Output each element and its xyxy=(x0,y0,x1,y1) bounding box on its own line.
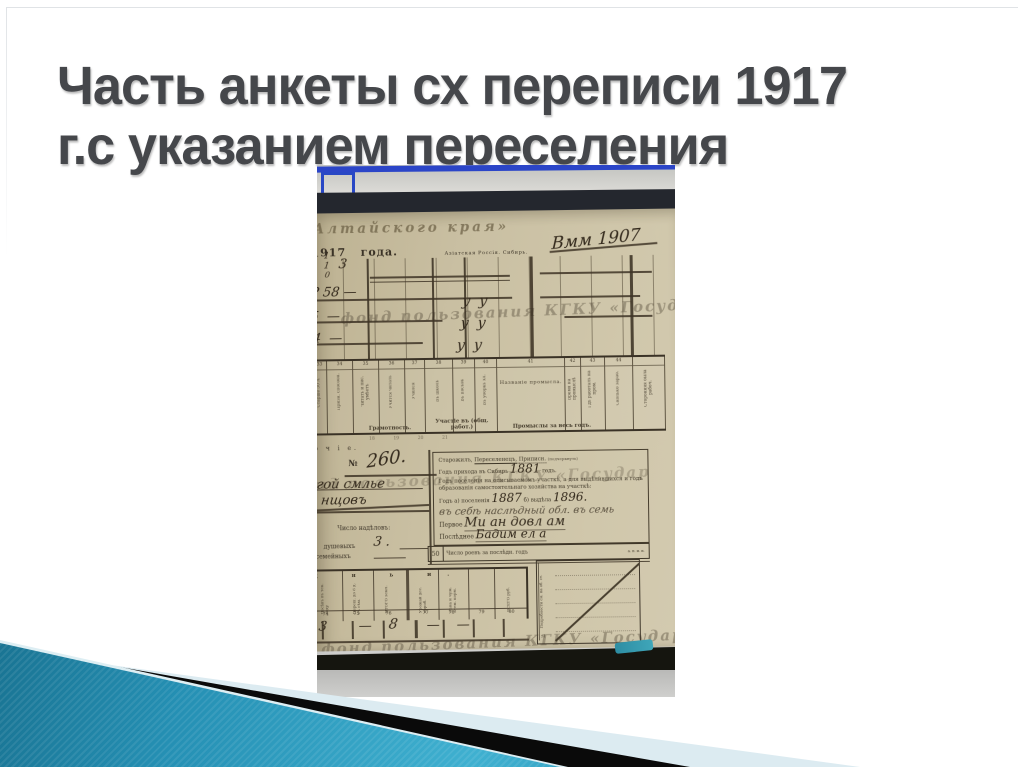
col-number xyxy=(633,357,664,366)
col-label: Старше 50 л. xyxy=(317,373,322,411)
col-label: Призн. способн. xyxy=(337,373,342,411)
grid-line xyxy=(383,621,385,639)
allotments-row1-value: 3 . xyxy=(373,534,391,549)
bottom-value: — xyxy=(426,618,441,633)
bottom-col-number: 78 xyxy=(449,611,455,616)
handwritten-digit: 3 xyxy=(338,257,348,272)
monitor-gray-band-bottom xyxy=(317,670,675,697)
col-number: 41 xyxy=(497,358,564,368)
row-50-text: Число роевъ за послѣдн. годъ xyxy=(443,550,528,557)
grid-line xyxy=(322,621,324,639)
form-region-header: Алтайского края» xyxy=(317,219,509,238)
settlement-paragraph: Годъ поселенія на описываемомъ участкѣ, … xyxy=(439,476,643,493)
last-value-handwritten: Бадим ел а xyxy=(476,526,547,542)
handwritten-row-entry: 4 — xyxy=(317,331,343,346)
pencil-line xyxy=(374,557,406,558)
dotted-line xyxy=(556,630,636,632)
col-label: Въ посѣвѣ xyxy=(461,371,466,409)
handwritten-check-marks: у у xyxy=(459,315,486,331)
form-subregion-label: Азіатская Россія. Сибирь. xyxy=(444,250,528,257)
settlement-label: Годъ а) поселенія xyxy=(439,498,490,505)
col-label: Гдѣ работалъ на пром. xyxy=(588,370,598,408)
bottom-col-number: 80 xyxy=(509,610,515,615)
bottom-col-label: ВСЕГО руб. xyxy=(506,578,511,612)
col-number: 39 xyxy=(453,359,474,368)
bottom-table-letters: д н ь и. xyxy=(317,571,465,579)
bottom-col-label: Сѣна и чуж. атем. корм. xyxy=(448,579,457,613)
col-number: 38 xyxy=(425,360,452,369)
handwritten-check-marks: у у xyxy=(461,293,488,309)
bottom-value: — xyxy=(358,619,373,634)
col-label: Читать и пис. умѣетъ xyxy=(361,373,371,411)
bottom-table: д н ь и. Посѣвъ въ тек. году Переш. до 6… xyxy=(317,567,529,622)
header-cell: 42Время на промыслѣ xyxy=(565,358,582,430)
pencil-line xyxy=(540,271,652,274)
bottom-col-number: 75 xyxy=(354,612,360,617)
status-note: (подчеркнуть) xyxy=(548,456,578,461)
bottom-col-label: Посѣвъ въ тек. году xyxy=(320,580,329,614)
col-number: 35 xyxy=(353,361,378,370)
bottom-col-number: 77 xyxy=(423,611,429,616)
col-label: Названіе промысла. xyxy=(497,379,564,386)
grid-line xyxy=(443,620,445,638)
header-cell: 44Сколько зараб. xyxy=(605,357,634,429)
allotments-label: Число надѣловъ: xyxy=(337,525,390,533)
handwritten-scrawl-line: въ себѣ наслѣдный обл. въ семь xyxy=(439,505,644,517)
settlement-year-2: 1896. xyxy=(553,490,588,504)
row-50-fraction-marks: а. п. и. п. xyxy=(628,548,649,553)
pencil-line xyxy=(370,275,510,278)
handwritten-name-line-2: нщовъ xyxy=(320,493,368,509)
row-50-number: 50 xyxy=(429,547,444,561)
arrival-year-handwritten: 1881 xyxy=(510,461,541,475)
col-number: 42 xyxy=(565,358,580,367)
header-cell: 36Учится читать xyxy=(379,360,406,432)
handwritten-household-number: 260. xyxy=(366,445,406,472)
pencil-line xyxy=(564,315,652,318)
diagonal-cell-label: Подробности см. на об. ст. xyxy=(538,562,553,640)
col-number: 44 xyxy=(605,357,632,366)
handwritten-row-entry: Р 58 — xyxy=(317,285,358,301)
word-fragment-bochie: о ч і е. xyxy=(317,445,359,453)
handwritten-digit: 1 xyxy=(323,251,330,261)
divider-line xyxy=(317,510,429,513)
pencil-line xyxy=(370,280,510,283)
col-number: 34 xyxy=(327,361,352,370)
census-form-paper: фонд пользования КГКУ «Госуд нд пользова… xyxy=(317,208,675,651)
col-number: 37 xyxy=(405,360,424,369)
pencil-line xyxy=(540,295,640,298)
grid-line xyxy=(468,569,470,619)
bottom-col-number: 79 xyxy=(479,610,485,615)
grid-line xyxy=(473,619,475,637)
diagonal-summary-cell: Подробности см. на об. ст. 51 xyxy=(536,559,641,644)
bottom-value: — xyxy=(456,617,471,632)
diagonal-cell-number: 51 xyxy=(541,633,546,638)
grid-line xyxy=(530,256,534,356)
settlement-year-1: 1887 xyxy=(491,491,522,505)
grid-line xyxy=(503,619,505,637)
handwritten-check-marks: у у xyxy=(456,337,483,353)
slide-border-left xyxy=(6,7,7,257)
bottom-col-label: Урожай дес. короб. xyxy=(418,579,427,613)
last-label: Послѣднее xyxy=(439,533,474,540)
col-label: Сколько зараб. xyxy=(616,369,621,407)
census-form-photo: фонд пользования КГКУ «Госуд нд пользова… xyxy=(317,165,675,697)
col-label: Сторонняя была рабоч. xyxy=(644,369,654,407)
last-row: Послѣднее Бадим ел а xyxy=(439,528,643,543)
col-number: 43 xyxy=(581,357,604,366)
arrival-label: Годъ прихода въ Сибирь xyxy=(439,469,509,476)
col-label: Учился xyxy=(412,372,417,410)
bottom-col-number: 74 xyxy=(323,612,329,617)
group-label-literacy: Грамотность. xyxy=(354,425,426,432)
pencil-line xyxy=(400,548,428,549)
header-cell-wide: 41Названіе промысла. xyxy=(497,358,566,431)
header-cell: 34Призн. способн. xyxy=(327,361,354,433)
upper-table-grid: 1 1 0 3 Р 58 — 5 — 4 — у у у у у у xyxy=(317,255,659,360)
vydel-label: б) выдѣла xyxy=(524,497,552,503)
form-column-header-row: 33Старше 50 л. 34Призн. способн. 35Читат… xyxy=(317,355,666,436)
title-line-1: Часть анкеты сх переписи 1917 xyxy=(57,56,949,116)
header-cell: 35Читать и пис. умѣетъ xyxy=(353,361,380,433)
header-cell: Сторонняя была рабоч. xyxy=(633,357,666,429)
first-label: Первое xyxy=(439,521,462,528)
bottom-col-label: ИТОГО земл. xyxy=(384,580,389,614)
col-label: Въ уборкѣ хл. xyxy=(483,371,488,409)
grid-line xyxy=(352,621,354,639)
slide-border-top xyxy=(6,7,1018,8)
slide-title: Часть анкеты сх переписи 1917 г.с указан… xyxy=(57,56,949,176)
col-label: Время на промыслѣ xyxy=(568,370,578,408)
number-sign-label: № xyxy=(348,459,357,469)
header-cell: 37Учился xyxy=(405,360,426,432)
header-cell: 43Гдѣ работалъ на пром. xyxy=(581,357,606,429)
col-number: 33 xyxy=(317,361,326,370)
table-footer-numbers: 18 19 20 21 xyxy=(369,436,448,442)
status-starozhil: Старожилъ, xyxy=(438,457,472,463)
grid-line xyxy=(415,620,418,638)
group-label-participation: Участіе въ (общ. работ.) xyxy=(426,418,498,431)
handwritten-digit: 0 xyxy=(324,270,330,279)
allotments-row2-label: семейныхъ xyxy=(317,553,351,560)
arrival-suffix: годъ. xyxy=(542,468,557,474)
col-number: 36 xyxy=(379,360,404,369)
col-label: Въ школѣ xyxy=(436,372,441,410)
grid-line xyxy=(494,569,496,619)
col-label: Учится читать xyxy=(389,372,394,410)
bottom-value: 8 xyxy=(388,616,399,632)
handwritten-row-entry: 5 — xyxy=(317,309,341,324)
dotted-line xyxy=(556,616,636,618)
dotted-line xyxy=(555,588,635,590)
col-number: 40 xyxy=(475,359,496,368)
settlement-info-block: Старожилъ, Переселенецъ, Приписн. (подче… xyxy=(432,449,649,546)
allotments-row1-label: душевыхъ xyxy=(324,543,356,550)
bottom-col-label: Переш. до 6 д. съ сѣм. xyxy=(352,580,361,614)
grid-line xyxy=(432,258,435,358)
